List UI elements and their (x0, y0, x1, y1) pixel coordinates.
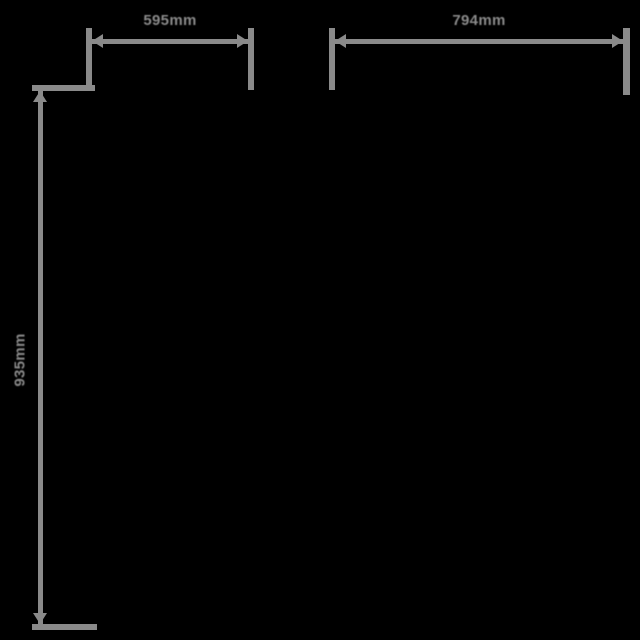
dimension-line (335, 39, 623, 44)
arrowhead-up-icon (33, 91, 47, 102)
extension-line (248, 28, 254, 90)
dimension-line (38, 91, 43, 624)
dimension-width-right-label: 794mm (452, 12, 505, 29)
arrowhead-left-icon (92, 34, 103, 48)
arrowhead-right-icon (612, 34, 623, 48)
dimension-width-left-label: 595mm (143, 12, 196, 29)
dimension-diagram: 595mm 794mm 935mm (0, 0, 640, 640)
arrowhead-down-icon (33, 613, 47, 624)
dimension-height-left-label: 935mm (12, 333, 29, 386)
extension-line (32, 624, 97, 630)
arrowhead-right-icon (237, 34, 248, 48)
dimension-line (92, 39, 248, 44)
arrowhead-left-icon (335, 34, 346, 48)
extension-line (623, 28, 630, 95)
